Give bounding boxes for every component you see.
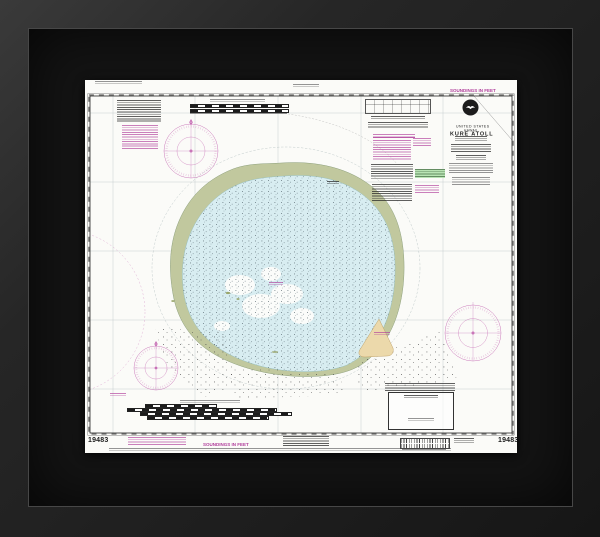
scale-subdivisions (190, 113, 287, 115)
notes-heading (371, 116, 425, 120)
correction-grid-caption (402, 449, 446, 451)
notes-paragraph-1 (368, 122, 428, 128)
bottom-scale-bar (140, 412, 292, 416)
correction-grid (400, 438, 450, 449)
notes-paragraph-3 (372, 184, 412, 202)
magenta-paragraph (373, 140, 411, 160)
chart-paper: SOUNDINGS IN FEET UNITED STATES HAWAII K… (85, 80, 517, 453)
noaa-logo-icon (461, 98, 480, 117)
tide-table (365, 99, 431, 114)
highlighted-note (415, 169, 445, 178)
bottom-scale-bar (145, 404, 217, 408)
north-reef-label (327, 181, 339, 184)
lagoon-label (269, 282, 283, 285)
chart-number-right: 19483 (498, 437, 517, 444)
top-center-note (293, 84, 319, 87)
magenta-note-2 (415, 185, 439, 194)
framed-nautical-chart: SOUNDINGS IN FEET UNITED STATES HAWAII K… (0, 0, 600, 537)
datum-note (451, 144, 491, 152)
chart-title: KURE ATOLL (450, 126, 517, 144)
compass-rose-icon (164, 120, 218, 178)
caution-note-block (117, 100, 161, 123)
projection-note (455, 136, 487, 141)
magenta-side-note (413, 138, 431, 147)
scale-bar (190, 104, 289, 108)
track-note (454, 438, 474, 443)
authorities-paragraph (449, 163, 493, 174)
bottom-magenta-stamp (128, 437, 186, 445)
west-margin-note (110, 393, 126, 397)
publisher-block (283, 436, 329, 446)
notes-paragraph-2 (371, 164, 413, 180)
scale-caption (210, 99, 265, 102)
compass-rose-icon (445, 302, 501, 361)
bottom-scale-bar (127, 408, 277, 412)
title-extra-paragraph (452, 177, 490, 185)
bottom-scale-bar (147, 416, 269, 420)
inset-box-title (404, 395, 438, 398)
inset-box (388, 392, 454, 430)
green-island-label (374, 332, 390, 336)
bottom-scale-caption (180, 400, 240, 403)
magenta-stamp-note (122, 125, 158, 149)
inset-note-lines (385, 383, 455, 392)
chart-number-left: 19483 (88, 437, 108, 444)
edition-note (95, 81, 142, 85)
soundings-datum-note (456, 155, 486, 160)
soundings-note-top-label: SOUNDINGS IN FEET (450, 88, 496, 93)
magenta-heading (373, 134, 415, 138)
inset-box-text (408, 418, 434, 422)
